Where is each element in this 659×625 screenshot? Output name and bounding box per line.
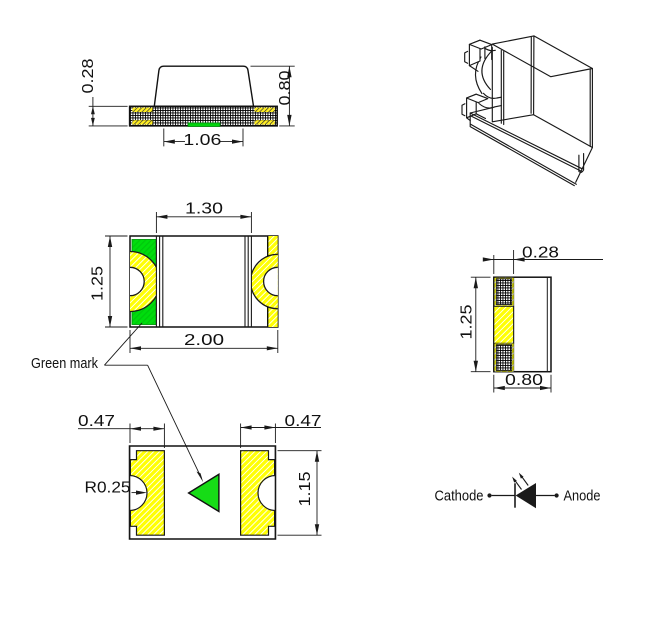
svg-text:0.28: 0.28 <box>522 245 559 262</box>
svg-text:0.80: 0.80 <box>505 372 543 389</box>
svg-text:1.15: 1.15 <box>297 471 314 506</box>
svg-text:Anode: Anode <box>564 488 601 505</box>
svg-text:R0.25: R0.25 <box>85 480 131 497</box>
svg-text:1.30: 1.30 <box>185 201 223 218</box>
svg-text:0.47: 0.47 <box>78 413 115 430</box>
svg-text:2.00: 2.00 <box>184 332 224 349</box>
svg-text:0.28: 0.28 <box>80 58 97 93</box>
svg-text:1.06: 1.06 <box>183 132 221 149</box>
svg-text:Cathode: Cathode <box>435 488 484 505</box>
svg-text:0.47: 0.47 <box>285 413 322 430</box>
svg-text:1.25: 1.25 <box>90 266 107 301</box>
svg-text:0.80: 0.80 <box>277 70 294 105</box>
svg-text:1.25: 1.25 <box>459 304 476 339</box>
svg-text:Green mark: Green mark <box>31 355 98 372</box>
